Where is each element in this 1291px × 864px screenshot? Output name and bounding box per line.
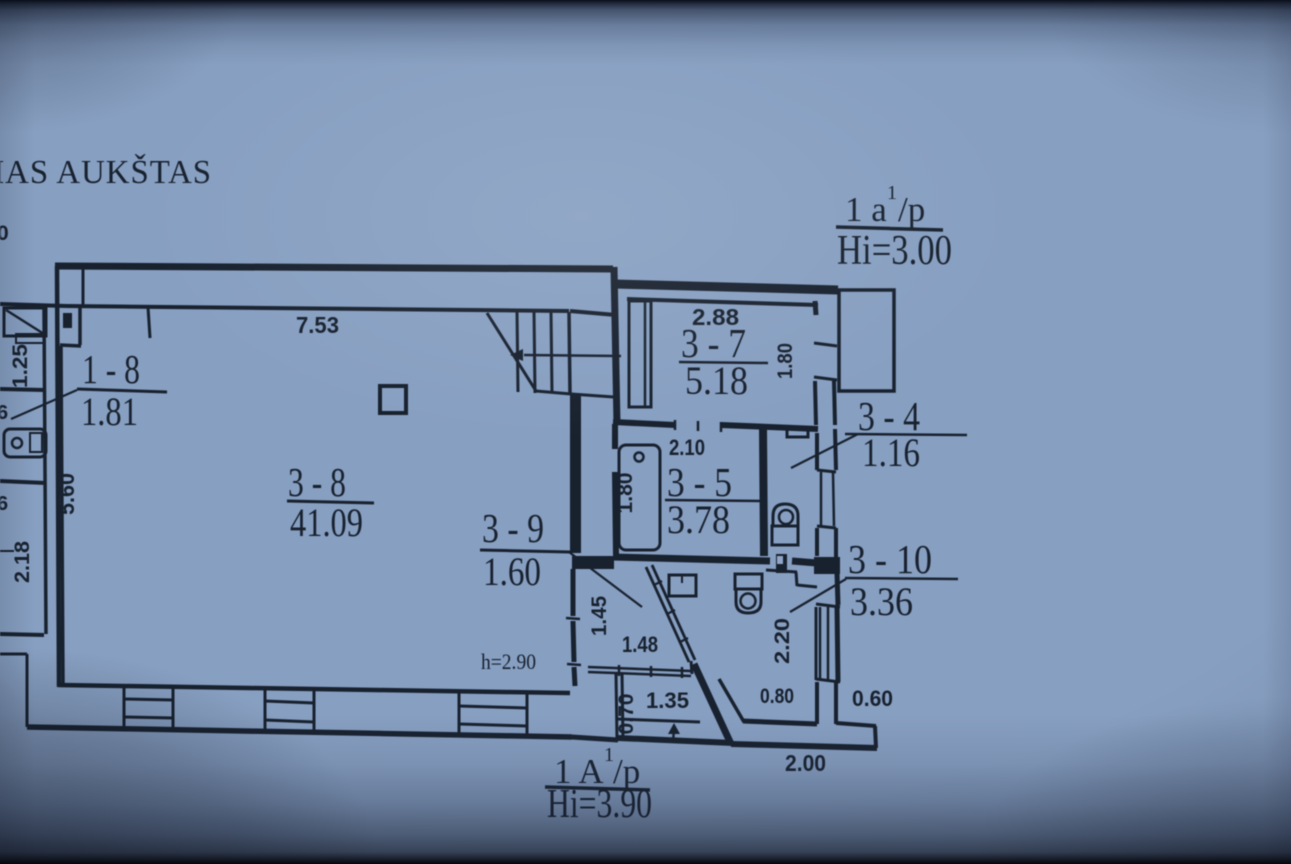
svg-text:2.00: 2.00 [785,750,826,776]
svg-text:1.45: 1.45 [588,596,611,636]
svg-text:5.18: 5.18 [685,358,748,403]
svg-text:h=2.90: h=2.90 [481,649,536,674]
svg-text:5.60: 5.60 [54,473,79,515]
svg-text:3 - 9: 3 - 9 [482,505,544,551]
svg-text:1.80: 1.80 [774,343,797,379]
svg-text:1.80: 1.80 [614,473,637,514]
svg-text:3 - 8: 3 - 8 [288,459,346,505]
svg-text:/p: /p [898,190,925,229]
svg-text:1.35: 1.35 [646,688,689,713]
svg-text:1: 1 [887,182,897,204]
svg-text:3.78: 3.78 [667,497,730,542]
svg-text:2.18: 2.18 [11,541,34,583]
svg-text:0.60: 0.60 [852,686,893,711]
svg-text:2.20: 2.20 [771,618,794,664]
svg-text:1.48: 1.48 [622,632,658,657]
svg-text:7.53: 7.53 [296,312,339,338]
svg-text:0.80: 0.80 [760,685,794,708]
svg-text:MAS AUKŠTAS: MAS AUKŠTAS [0,153,212,191]
svg-text:1.16: 1.16 [862,430,920,475]
svg-text:Hi=3.00: Hi=3.00 [837,228,952,274]
svg-text:Hi=3.90: Hi=3.90 [547,780,652,826]
svg-text:1.81: 1.81 [81,389,138,434]
svg-text:0: 0 [0,222,9,245]
svg-text:1 a: 1 a [845,190,887,229]
svg-text:1 - 8: 1 - 8 [82,346,140,392]
svg-text:41.09: 41.09 [290,500,363,545]
svg-text:6: 6 [0,493,8,515]
svg-text:1.25: 1.25 [9,344,32,388]
svg-text:6: 6 [0,402,8,424]
svg-text:2.10: 2.10 [669,435,705,460]
svg-text:0.70: 0.70 [615,694,638,735]
svg-text:3 - 10: 3 - 10 [848,536,932,582]
svg-text:3.36: 3.36 [850,579,913,624]
svg-text:1.60: 1.60 [483,549,541,594]
